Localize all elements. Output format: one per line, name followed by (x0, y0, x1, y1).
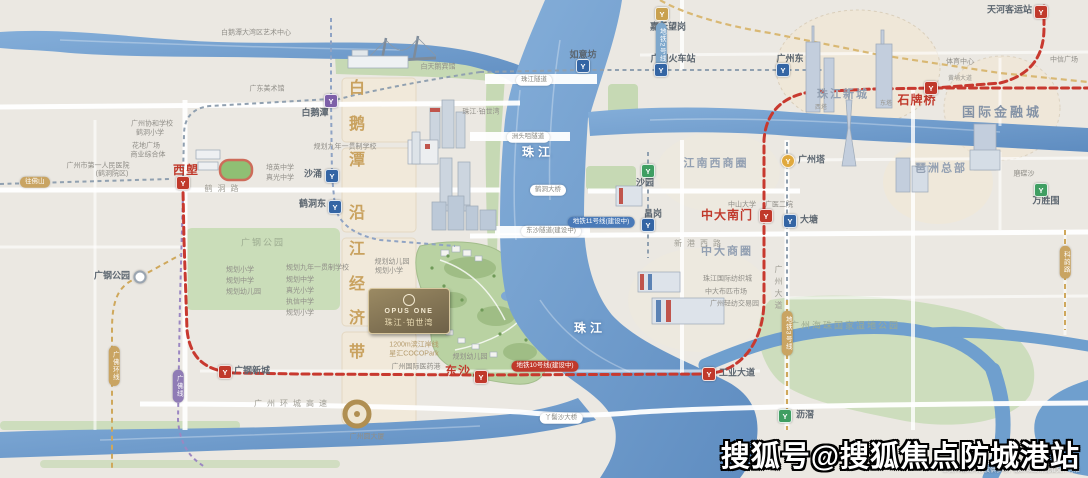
poi-label-xiehe-school: 广州协和学校 (131, 121, 173, 128)
station-label-baietan: 白鹅潭 (301, 109, 328, 118)
station-label-lijiao: 沥滘 (796, 411, 814, 420)
map-root: OPUS ONE 珠江·铂世湾 搜狐号@搜狐焦点防城港站 西塱广钢新城东沙工业大… (0, 0, 1088, 478)
station-icon-shipaiqiao: Y (924, 81, 938, 95)
station-label-wanshengwei: 万胜围 (1032, 197, 1059, 206)
road-label-xingangxi-road: 新港西路 (674, 240, 726, 248)
district-char-bai: 白 (349, 81, 365, 97)
poi-label-textile-city: 珠江国际纺织城 (703, 276, 752, 283)
district-char-jiang: 江 (349, 242, 365, 258)
tunnel-pill-zhoutouzui: 洲头咀隧道 (507, 132, 550, 143)
station-label-shayuan: 沙园 (636, 179, 654, 188)
poi-label-school-list-4: 规划九年一贯制学校 (286, 265, 349, 272)
poi-label-white-swan-hotel: 白天鹅宾馆 (421, 64, 456, 71)
poi-label-hospital: 广州市第一人民医院 (67, 163, 130, 170)
station-label-shachong: 沙涌 (304, 170, 322, 179)
poi-label-school-list-5: 规划中学 (286, 277, 314, 284)
station-icon-guangzhou-railway: Y (654, 63, 668, 77)
watermark: 搜狐号@搜狐焦点防城港站 (721, 433, 1080, 475)
station-label-shipaiqiao: 石牌桥 (897, 94, 936, 106)
poi-label-sports-center: 体育中心 (946, 59, 974, 66)
poi-label-school-list-8: 规划小学 (286, 310, 314, 317)
poi-label-riverside-project: 珠江·铂世湾 (462, 109, 499, 116)
poi-label-citic-plaza: 中信广场 (1050, 57, 1078, 64)
poi-label-art-center: 白鹅潭大湾区艺术中心 (221, 30, 291, 37)
station-icon-wanshengwei: Y (1034, 183, 1048, 197)
district-char-tan: 潭 (349, 153, 365, 169)
poi-label-pharma-port: 广州国际医药港 (392, 364, 441, 371)
station-icon-baietan: Y (324, 94, 338, 108)
station-icon-lijiao: Y (778, 409, 792, 423)
station-label-datang: 大塘 (800, 216, 818, 225)
station-label-xilang: 西塱 (173, 164, 199, 176)
station-label-hedongdong: 鹤洞东 (299, 200, 326, 209)
station-icon-changgang: Y (641, 218, 655, 232)
poi-label-planned-primary-1: 规划小学 (375, 268, 403, 275)
district-label-financial-city: 国际金融城 (962, 106, 1042, 119)
poi-label-hospital-branch: (鹤洞院区) (96, 171, 129, 178)
poi-label-east-tower: 东塔 (880, 101, 892, 107)
poi-label-school-list-3: 规划幼儿园 (226, 289, 261, 296)
station-icon-gongye-dadao: Y (702, 367, 716, 381)
station-label-dongsha: 东沙 (445, 365, 471, 377)
station-label-tianhe-keyunzhan: 天河客运站 (987, 6, 1032, 15)
poi-label-guangzhou-circle: 广州圆大厦 (350, 434, 385, 441)
project-note-cocopark: 星汇COCOPark (389, 351, 438, 358)
poi-label-school-zhenguang: 真光中学 (266, 175, 294, 182)
bridge-pill-hedong: 鹤洞大桥 (530, 185, 566, 196)
station-icon-shayuan: Y (641, 164, 655, 178)
station-icon-canton-tower: Y (781, 154, 795, 168)
poi-label-school-list-6: 真光小学 (286, 288, 314, 295)
station-label-guanggang-xincheng: 广钢新城 (234, 367, 270, 376)
station-icon-dongsha: Y (474, 370, 488, 384)
station-label-gongye-dadao: 工业大道 (719, 369, 755, 378)
direction-pill-foshan: 往佛山 (20, 177, 50, 188)
poi-label-modiesha: 磨碟沙 (1014, 171, 1035, 178)
district-label-zhongda: 中大商圈 (701, 247, 753, 258)
poi-label-school-peiying: 培英中学 (266, 165, 294, 172)
project-logo-latin: OPUS ONE (385, 308, 434, 315)
station-label-zhongda-nanmen: 中大南门 (701, 209, 753, 221)
station-icon-hedongdong: Y (328, 200, 342, 214)
station-icon-ruyifang: Y (576, 59, 590, 73)
project-logo: OPUS ONE 珠江·铂世湾 (368, 288, 450, 334)
station-icon-datang: Y (783, 214, 797, 228)
station-icon-guanggang-xincheng: Y (218, 365, 232, 379)
park-label-guanggang: 广钢公园 (241, 239, 285, 248)
road-pill-keyun: 科韵路 (1060, 246, 1071, 279)
road-label-hedong-road: 鹤洞路 (205, 185, 244, 193)
poi-label-school-list-2: 规划中学 (226, 278, 254, 285)
station-icon-xilang: Y (176, 176, 190, 190)
metro-pill-line2: 地铁2号线 (656, 23, 667, 68)
poi-label-school-list-7: 执信中学 (286, 299, 314, 306)
map-graphics (0, 0, 1088, 478)
poi-label-hedong-primary: 鹤洞小学 (136, 130, 164, 137)
station-icon-guangzhoudong: Y (776, 63, 790, 77)
poi-label-planned-kindergarten-1: 规划幼儿园 (375, 259, 410, 266)
road-label-ring-expressway: 广州环城高速 (254, 400, 332, 408)
poi-label-planned-school: 规划九年一贯制学校 (314, 144, 377, 151)
poi-label-school-list-1: 规划小学 (226, 267, 254, 274)
station-label-canton-tower: 广州塔 (798, 156, 825, 165)
station-icon-guanggang-park (134, 271, 147, 284)
station-label-guanggang-park: 广钢公园 (94, 272, 130, 281)
district-label-jiangnanxi: 江南西商圈 (684, 159, 749, 170)
poi-label-gy2-hospital: 广医二院 (765, 202, 793, 209)
poi-label-fabric-market: 中大布匹市场 (705, 289, 747, 296)
poi-label-west-tower: 西塔 (815, 105, 827, 111)
bridge-pill-yajisha: 丫髻沙大桥 (540, 413, 583, 424)
poi-label-commercial-complex: 商业综合体 (131, 152, 166, 159)
poi-label-planned-kindergarten-2: 规划幼儿园 (453, 354, 488, 361)
metro-pill-guangfo: 广佛线 (173, 370, 184, 403)
poi-label-huadi-plaza: 花地广场 (132, 143, 160, 150)
poi-label-art-museum: 广东美术馆 (250, 86, 285, 93)
metro-pill-line3: 地铁3号线 (782, 311, 793, 356)
district-char-yan: 沿 (349, 206, 365, 222)
tunnel-pill-dongsha: 东沙隧道(建设中) (521, 226, 581, 237)
district-char-ji: 济 (349, 311, 365, 327)
district-char-jing: 经 (349, 277, 365, 293)
river-label-pearl-south: 珠江 (574, 322, 606, 334)
district-char-e: 鹅 (349, 117, 365, 133)
project-note-riverfront: 1200m滨江岸线 (389, 342, 438, 349)
project-logo-chinese: 珠江·铂世湾 (385, 317, 434, 328)
station-icon-tianhe-keyunzhan: Y (1034, 5, 1048, 19)
district-label-haizhu-wetland: 广州海珠国家湿地公园 (790, 322, 900, 331)
district-label-pazhou: 琶洲总部 (915, 164, 967, 175)
road-label-guangzhou-avenue: 广州大道 (774, 265, 782, 313)
metro-pill-line10: 地铁10号线(建设中) (511, 361, 578, 372)
metro-pill-line11: 地铁11号线(建设中) (568, 217, 635, 228)
poi-label-sysu: 中山大学 (728, 202, 756, 209)
road-label-huangpu-avenue: 黄埔大道 (948, 76, 972, 82)
station-icon-jiahewanggang: Y (655, 7, 669, 21)
district-char-dai: 带 (349, 345, 365, 361)
project-crest-icon (403, 294, 415, 306)
river-label-pearl-north: 珠江 (522, 146, 554, 158)
poi-label-textile-park: 广州轻纺交易园 (710, 301, 759, 308)
rail-pill-guangfo-loop: 广佛环线 (109, 346, 120, 386)
station-icon-shachong: Y (325, 169, 339, 183)
station-icon-zhongda-nanmen: Y (759, 209, 773, 223)
district-label-zhujiang-new-town: 珠江新城 (817, 90, 869, 101)
tunnel-pill-zhujiang: 珠江隧道 (516, 75, 552, 86)
